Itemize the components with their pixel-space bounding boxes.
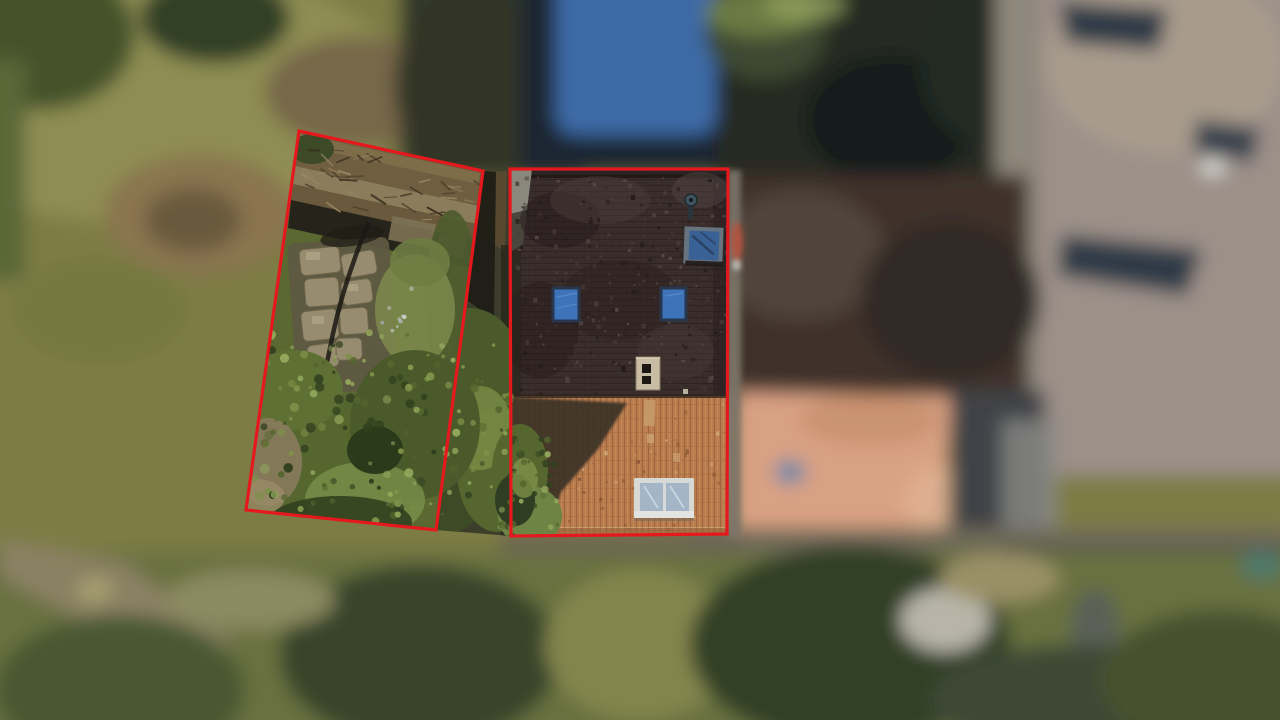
- texture-dot: [270, 429, 276, 435]
- texture-dot: [556, 180, 560, 183]
- texture-dot: [526, 341, 530, 345]
- texture-dot: [384, 197, 397, 198]
- texture-dot: [631, 242, 633, 244]
- texture-dot: [591, 186, 593, 188]
- texture-dot: [622, 479, 625, 482]
- texture-dot: [537, 177, 539, 179]
- texture-dot: [681, 254, 684, 257]
- texture-dot: [707, 356, 709, 358]
- texture-dot: [609, 281, 612, 284]
- texture-dot: [439, 343, 445, 349]
- texture-dot: [679, 266, 682, 269]
- texture-dot: [638, 273, 640, 276]
- texture-dot: [569, 259, 572, 262]
- texture-dot: [261, 423, 268, 430]
- texture-dot: [524, 246, 526, 247]
- texture-dot: [548, 524, 553, 529]
- texture-dot: [525, 315, 527, 317]
- texture-dot: [633, 284, 635, 286]
- texture-dot: [568, 520, 571, 523]
- texture-dot: [545, 451, 551, 457]
- texture-dot: [676, 442, 679, 447]
- texture-dot: [648, 259, 652, 262]
- texture-dot: [623, 180, 627, 182]
- texture-dot: [274, 418, 278, 422]
- texture-dot: [691, 358, 696, 362]
- texture-dot: [607, 234, 610, 236]
- texture-dot: [596, 226, 598, 228]
- roof-window-sill: [634, 511, 694, 518]
- texture-dot: [283, 463, 293, 473]
- texture-dot: [645, 182, 647, 183]
- texture-dot: [461, 365, 465, 369]
- texture-dot: [298, 376, 304, 382]
- texture-dot: [573, 190, 576, 194]
- texture-dot: [614, 481, 617, 484]
- texture-dot: [640, 242, 644, 247]
- texture-dot: [601, 507, 604, 510]
- texture-dot: [524, 303, 527, 306]
- texture-dot: [541, 486, 548, 493]
- texture-dot: [713, 473, 716, 477]
- texture-dot: [409, 287, 414, 292]
- texture-dot: [379, 334, 384, 339]
- texture-dot: [492, 343, 495, 346]
- texture-dot: [536, 255, 540, 259]
- texture-dot: [538, 437, 544, 443]
- texture-dot: [362, 359, 366, 363]
- texture-dot: [544, 216, 548, 219]
- texture-dot: [334, 415, 343, 424]
- chimney-flue: [642, 364, 651, 373]
- neighbor-skylight-dot: [774, 460, 806, 484]
- texture-dot: [374, 420, 384, 430]
- texture-dot: [678, 181, 680, 183]
- texture-dot: [719, 305, 721, 308]
- texture-dot: [676, 185, 679, 188]
- texture-dot: [547, 473, 552, 478]
- texture-dot: [582, 468, 585, 471]
- texture-dot: [475, 379, 479, 383]
- texture-dot: [651, 299, 654, 301]
- texture-dot: [675, 439, 677, 441]
- texture-dot: [452, 429, 460, 437]
- texture-dot: [596, 244, 599, 248]
- texture-dot: [639, 334, 642, 336]
- texture-dot: [628, 184, 632, 188]
- texture-dot: [602, 317, 606, 321]
- texture-dot: [661, 337, 663, 339]
- texture-dot: [537, 233, 539, 236]
- texture-dot: [470, 420, 476, 426]
- texture-dot: [451, 358, 456, 363]
- texture-dot: [588, 181, 591, 183]
- texture-dot: [314, 374, 324, 384]
- texture-dot: [553, 230, 557, 235]
- texture-dot: [720, 281, 722, 284]
- texture-dot: [398, 319, 402, 323]
- texture-dot: [429, 502, 432, 505]
- left-edge-trees: [0, 60, 25, 280]
- texture-dot: [589, 220, 593, 225]
- orange-roof-mark: [647, 434, 654, 443]
- texture-dot: [540, 335, 543, 338]
- texture-dot: [604, 451, 607, 455]
- texture-dot: [630, 441, 633, 445]
- texture-dot: [542, 304, 544, 305]
- texture-dot: [581, 285, 585, 290]
- texture-dot: [592, 318, 596, 322]
- texture-dot: [629, 361, 632, 364]
- texture-dot: [713, 206, 716, 209]
- texture-dot: [716, 362, 718, 363]
- texture-dot: [610, 296, 613, 300]
- texture-dot: [671, 232, 674, 235]
- texture-dot: [554, 499, 559, 504]
- texture-dot: [713, 332, 716, 335]
- texture-dot: [542, 219, 544, 222]
- texture-dot: [289, 417, 293, 421]
- garden-tree-shade: [347, 426, 403, 474]
- texture-dot: [520, 480, 527, 487]
- texture-dot: [674, 418, 676, 419]
- texture-dot: [555, 324, 558, 326]
- texture-dot: [517, 266, 520, 269]
- texture-dot: [578, 256, 580, 258]
- texture-dot: [688, 299, 692, 302]
- texture-dot: [658, 226, 661, 229]
- texture-dot: [405, 333, 409, 337]
- texture-dot: [714, 338, 717, 340]
- bottom-khaki: [940, 553, 1060, 603]
- texture-dot: [684, 346, 687, 349]
- texture-dot: [499, 507, 505, 513]
- texture-dot: [330, 478, 336, 484]
- texture-dot: [716, 431, 719, 435]
- texture-dot: [631, 195, 635, 200]
- texture-dot: [703, 386, 707, 392]
- texture-dot: [611, 499, 614, 502]
- texture-dot: [350, 382, 354, 386]
- texture-dot: [294, 385, 300, 391]
- texture-dot: [383, 471, 391, 479]
- texture-dot: [390, 329, 394, 333]
- texture-dot: [589, 207, 591, 210]
- vent-stem: [688, 206, 693, 219]
- texture-dot: [579, 202, 582, 205]
- texture-dot: [336, 341, 343, 348]
- texture-dot: [526, 211, 529, 214]
- texture-dot: [255, 491, 265, 501]
- texture-dot: [503, 431, 507, 435]
- texture-dot: [512, 465, 517, 470]
- texture-dot: [289, 451, 294, 456]
- texture-dot: [716, 183, 719, 187]
- texture-dot: [717, 290, 720, 293]
- texture-dot: [431, 449, 436, 454]
- texture-dot: [434, 361, 441, 368]
- texture-dot: [490, 485, 493, 488]
- texture-dot: [661, 343, 663, 345]
- texture-dot: [669, 281, 673, 285]
- texture-dot: [675, 248, 678, 250]
- texture-dot: [657, 324, 659, 325]
- texture-dot: [536, 323, 538, 325]
- texture-dot: [678, 280, 681, 283]
- texture-dot: [554, 245, 557, 249]
- texture-dot: [518, 232, 520, 234]
- texture-dot: [611, 198, 613, 200]
- texture-dot: [579, 364, 582, 368]
- chimney-body: [636, 357, 660, 390]
- texture-dot: [334, 355, 337, 358]
- texture-dot: [447, 490, 452, 495]
- texture-dot: [588, 179, 590, 181]
- texture-dot: [278, 471, 285, 478]
- texture-dot: [576, 360, 578, 363]
- texture-dot: [580, 273, 582, 274]
- texture-dot: [367, 417, 375, 425]
- texture-dot: [642, 280, 645, 282]
- texture-dot: [708, 179, 712, 182]
- texture-dot: [711, 215, 715, 218]
- texture-dot: [395, 511, 401, 517]
- texture-dot: [601, 200, 605, 205]
- texture-dot: [595, 336, 599, 340]
- texture-dot: [643, 235, 646, 238]
- texture-dot: [397, 374, 404, 381]
- texture-dot: [594, 301, 598, 306]
- texture-dot: [615, 308, 618, 312]
- texture-dot: [586, 239, 590, 243]
- texture-dot: [278, 386, 282, 390]
- texture-dot: [565, 377, 569, 383]
- texture-dot: [699, 306, 702, 308]
- neighbor-roof-shading: [800, 395, 940, 445]
- texture-dot: [696, 297, 698, 300]
- texture-dot: [468, 481, 472, 485]
- roof-transition-line: [511, 394, 728, 398]
- texture-dot: [369, 479, 374, 484]
- texture-dot: [543, 344, 545, 346]
- grass-mid-patch: [15, 260, 185, 360]
- texture-dot: [681, 387, 684, 389]
- texture-dot: [465, 492, 472, 499]
- texture-dot: [548, 330, 550, 331]
- skylight-right: [661, 288, 686, 320]
- texture-dot: [597, 218, 600, 222]
- texture-dot: [350, 455, 354, 459]
- texture-dot: [386, 503, 390, 507]
- texture-dot: [403, 430, 408, 435]
- texture-dot: [318, 423, 326, 431]
- texture-dot: [619, 204, 622, 207]
- texture-dot: [396, 325, 399, 328]
- texture-dot: [556, 272, 558, 274]
- texture-dot: [710, 463, 713, 467]
- texture-dot: [478, 422, 487, 431]
- texture-dot: [407, 385, 410, 388]
- texture-dot: [310, 470, 315, 475]
- texture-dot: [519, 499, 524, 504]
- neighbor-roof-shadow: [860, 220, 1040, 380]
- texture-dot: [675, 471, 678, 475]
- light-spot: [77, 578, 113, 602]
- texture-dot: [354, 396, 361, 403]
- texture-dot: [695, 305, 697, 306]
- texture-dot: [565, 237, 568, 239]
- roof-window-shadow: [634, 518, 694, 521]
- texture-dot: [651, 245, 654, 248]
- texture-dot: [532, 491, 537, 496]
- texture-dot: [534, 298, 538, 303]
- texture-dot: [582, 491, 586, 494]
- texture-dot: [592, 316, 594, 317]
- texture-dot: [457, 418, 464, 425]
- texture-dot: [587, 257, 590, 259]
- texture-dot: [332, 407, 340, 415]
- texture-dot: [411, 506, 415, 510]
- texture-dot: [578, 488, 580, 490]
- stone-highlight: [306, 252, 320, 260]
- texture-dot: [636, 419, 638, 420]
- texture-dot: [642, 470, 645, 473]
- texture-dot: [682, 344, 684, 347]
- texture-dot: [610, 302, 612, 304]
- texture-dot: [457, 409, 461, 413]
- texture-dot: [445, 382, 452, 389]
- texture-dot: [668, 257, 672, 260]
- texture-dot: [499, 521, 507, 529]
- texture-dot: [452, 448, 458, 454]
- texture-dot: [377, 486, 381, 490]
- texture-dot: [708, 377, 712, 383]
- texture-dot: [673, 203, 675, 204]
- texture-dot: [684, 410, 687, 415]
- texture-dot: [535, 474, 538, 477]
- texture-dot: [642, 324, 646, 329]
- texture-dot: [521, 294, 523, 297]
- texture-dot: [625, 524, 627, 526]
- texture-dot: [394, 489, 399, 494]
- texture-dot: [701, 343, 704, 346]
- texture-dot: [360, 399, 368, 407]
- texture-dot: [554, 367, 556, 370]
- texture-dot: [659, 265, 663, 268]
- texture-dot: [480, 380, 484, 384]
- texture-dot: [721, 174, 725, 179]
- texture-dot: [663, 191, 666, 194]
- texture-dot: [593, 264, 596, 267]
- texture-dot: [521, 206, 525, 208]
- texture-dot: [300, 351, 308, 359]
- skylight-left: [553, 288, 579, 321]
- texture-dot: [331, 344, 335, 348]
- texture-dot: [306, 423, 316, 433]
- texture-dot: [441, 513, 444, 516]
- texture-dot: [599, 256, 601, 258]
- texture-dot: [440, 197, 457, 198]
- texture-dot: [422, 219, 432, 220]
- texture-dot: [427, 354, 430, 357]
- texture-dot: [589, 351, 592, 354]
- texture-dot: [598, 321, 600, 322]
- texture-dot: [298, 506, 304, 512]
- texture-dot: [606, 481, 608, 483]
- texture-dot: [640, 204, 643, 206]
- texture-dot: [647, 335, 650, 337]
- building-white-dot: [1200, 158, 1226, 176]
- texture-dot: [551, 461, 557, 467]
- texture-dot: [380, 321, 384, 325]
- texture-dot: [470, 467, 476, 473]
- texture-dot: [502, 449, 508, 455]
- texture-dot: [288, 380, 295, 387]
- texture-dot: [721, 331, 723, 333]
- texture-dot: [675, 221, 678, 224]
- texture-dot: [639, 283, 641, 285]
- texture-dot: [448, 345, 451, 348]
- texture-dot: [621, 262, 625, 266]
- texture-dot: [668, 238, 671, 241]
- texture-dot: [719, 205, 723, 208]
- texture-dot: [321, 361, 326, 366]
- chimney-flue: [642, 376, 651, 384]
- texture-dot: [523, 351, 527, 354]
- texture-dot: [406, 399, 415, 408]
- texture-dot: [350, 484, 356, 490]
- texture-dot: [703, 277, 705, 278]
- texture-dot: [561, 280, 564, 283]
- texture-dot: [573, 344, 577, 347]
- texture-dot: [710, 320, 712, 322]
- texture-dot: [664, 211, 668, 214]
- roof-window: [634, 478, 694, 521]
- texture-dot: [687, 221, 690, 223]
- texture-dot: [701, 222, 705, 225]
- texture-dot: [618, 364, 620, 366]
- texture-dot: [612, 361, 615, 364]
- texture-dot: [370, 372, 374, 376]
- texture-dot: [631, 290, 635, 294]
- stone-highlight: [312, 316, 324, 324]
- texture-dot: [642, 335, 645, 338]
- red-object-blob: [731, 222, 743, 262]
- bottom-dry-band: [165, 570, 335, 630]
- texture-dot: [500, 428, 503, 431]
- texture-dot: [605, 187, 607, 188]
- texture-dot: [398, 448, 404, 454]
- texture-dot: [681, 360, 685, 362]
- texture-dot: [644, 219, 646, 221]
- texture-dot: [662, 254, 665, 258]
- texture-dot: [649, 200, 651, 202]
- texture-dot: [618, 371, 620, 373]
- texture-dot: [484, 450, 490, 456]
- texture-dot: [634, 455, 636, 457]
- texture-dot: [290, 403, 299, 412]
- texture-dot: [695, 285, 697, 287]
- texture-dot: [278, 429, 286, 437]
- texture-dot: [575, 262, 578, 266]
- patio-stone: [340, 249, 378, 279]
- texture-dot: [688, 327, 690, 329]
- texture-dot: [645, 273, 649, 277]
- texture-dot: [712, 201, 714, 202]
- texture-dot: [443, 193, 456, 194]
- orange-roof-vent-patch: [644, 400, 656, 426]
- texture-dot: [593, 354, 595, 356]
